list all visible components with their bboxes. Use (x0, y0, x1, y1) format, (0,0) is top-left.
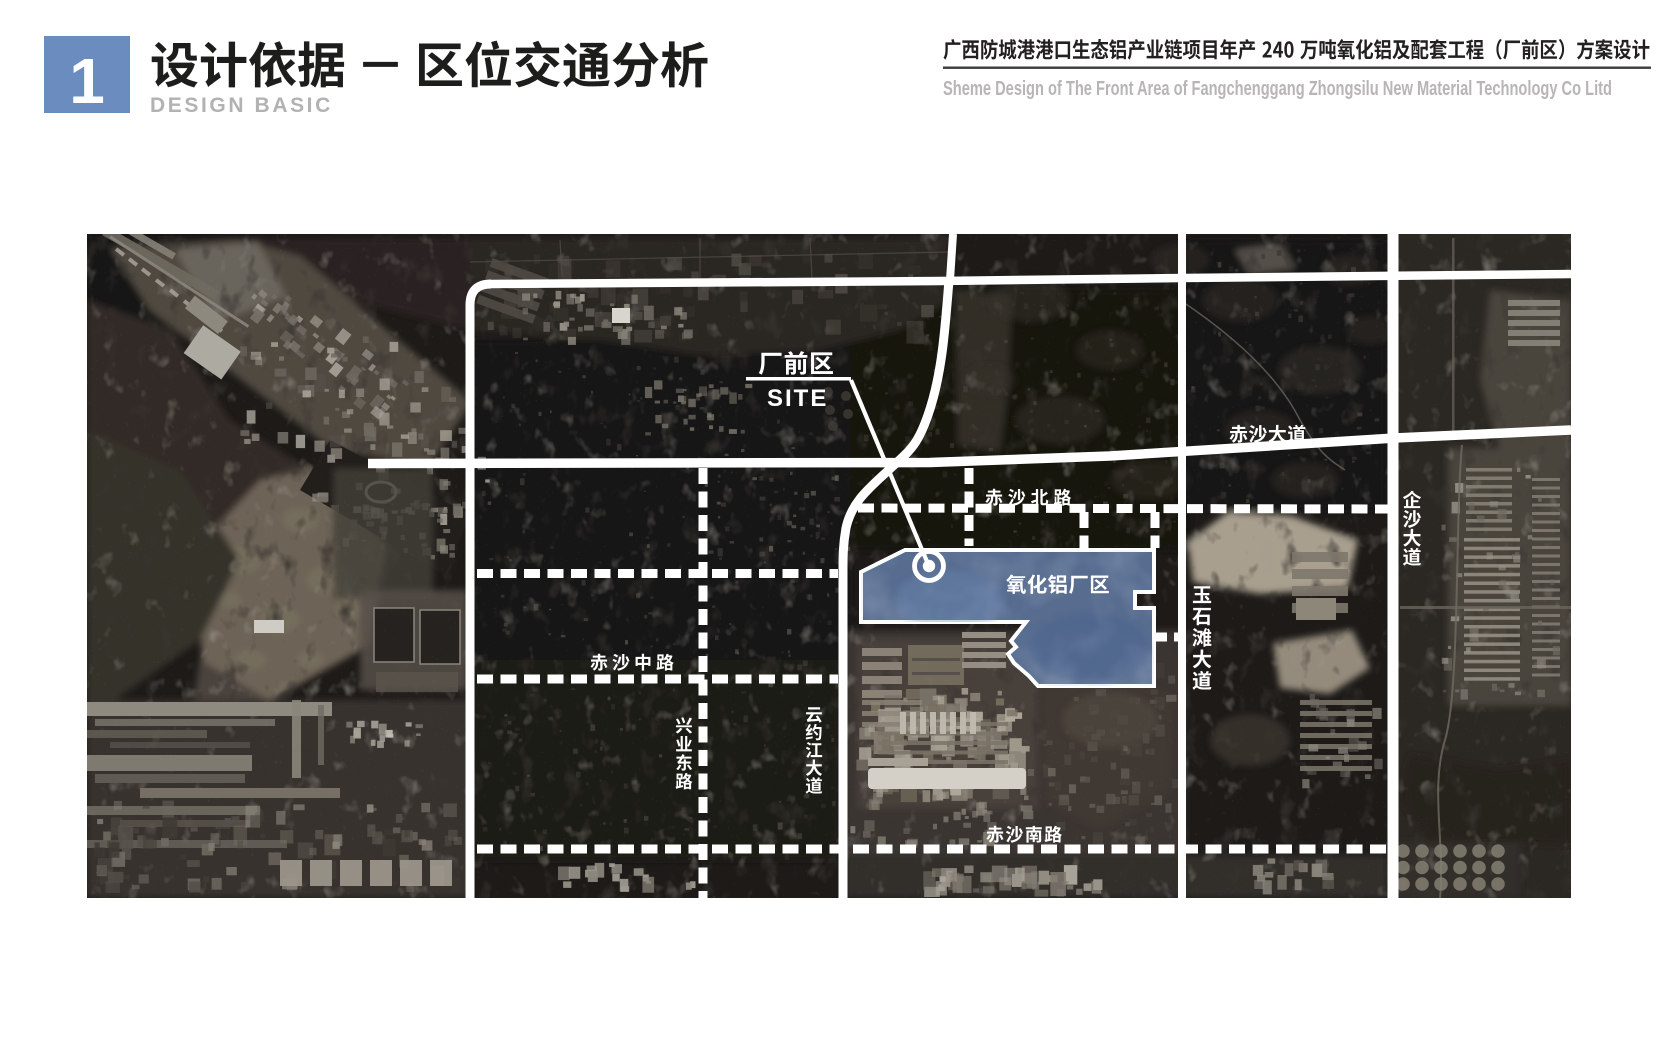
svg-text:SITE: SITE (767, 385, 828, 412)
svg-text:Sheme Design of The Front Area: Sheme Design of The Front Area of Fangch… (943, 77, 1612, 100)
svg-text:DESIGN BASIC: DESIGN BASIC (150, 94, 333, 117)
svg-text:1: 1 (69, 45, 105, 117)
